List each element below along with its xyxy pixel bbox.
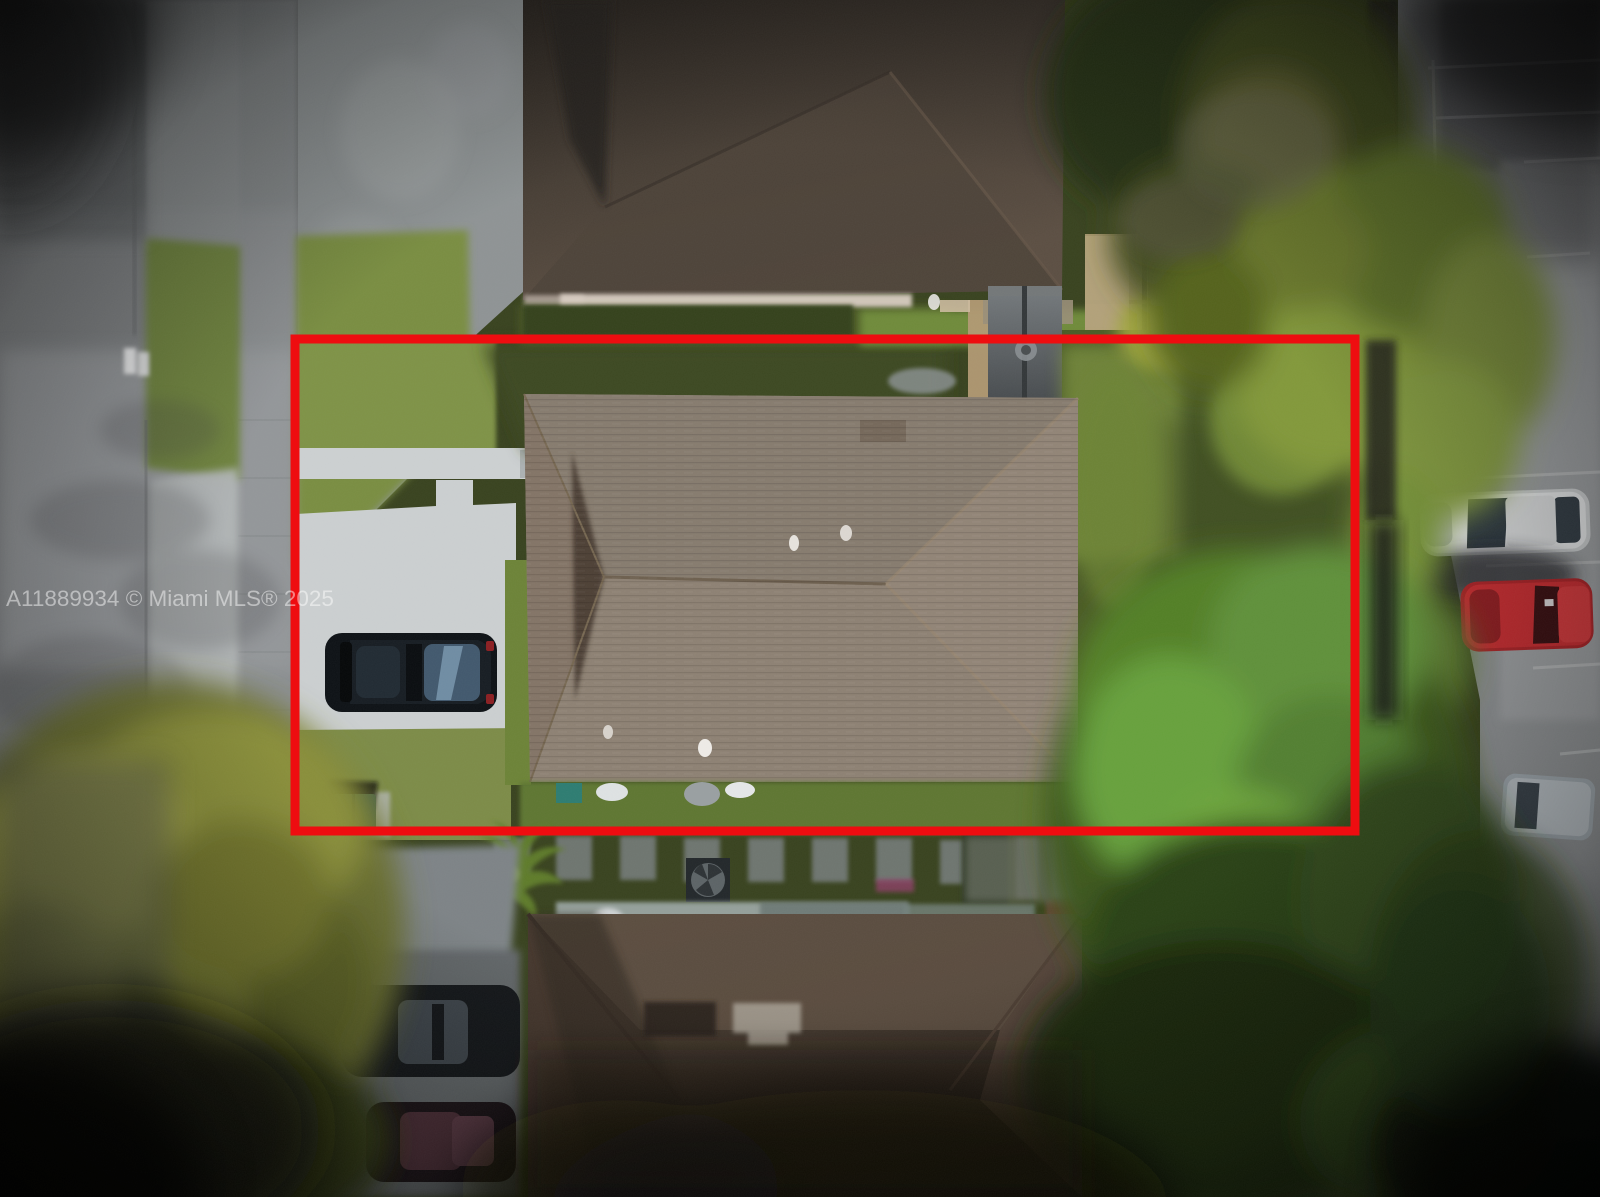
svg-text:A11889934 © Miami MLS® 2025: A11889934 © Miami MLS® 2025 (6, 586, 334, 611)
